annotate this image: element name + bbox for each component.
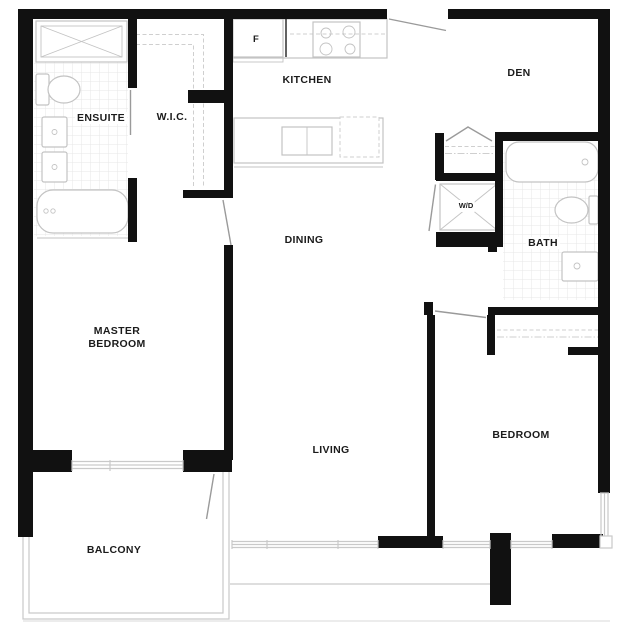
sink-bath — [562, 252, 598, 281]
wall — [435, 133, 444, 180]
room-label-living: LIVING — [310, 444, 351, 456]
wall — [128, 18, 137, 88]
wall — [436, 173, 501, 181]
floor-plan: ENSUITE W.I.C. KITCHEN DEN DINING BATH M… — [0, 0, 639, 628]
bedroom-closet-shelf — [497, 330, 598, 337]
entry-door — [389, 19, 446, 31]
room-label-kitchen: KITCHEN — [280, 74, 333, 86]
wall — [224, 245, 233, 460]
room-label-balcony: BALCONY — [85, 544, 143, 556]
toilet-ensuite — [36, 74, 80, 105]
appliance-label-washer-dryer: W/D — [458, 200, 475, 212]
den-closet-bifold-door — [446, 127, 492, 141]
wall — [18, 9, 387, 19]
floor-plan-drawing — [0, 0, 639, 628]
room-label-master-bedroom-line2: BEDROOM — [88, 338, 145, 351]
washer-dryer-door — [429, 185, 436, 232]
toilet-bath — [555, 196, 598, 224]
bedroom-hall-door — [435, 311, 486, 318]
wall — [30, 450, 72, 472]
sink-ensuite-2 — [42, 152, 67, 182]
wall — [490, 533, 511, 605]
bedroom-window — [600, 493, 612, 548]
wall — [188, 90, 224, 103]
room-label-bath: BATH — [526, 237, 560, 249]
wall — [224, 18, 233, 198]
shower — [36, 21, 127, 62]
wic-corridor-door — [223, 200, 231, 245]
room-label-den: DEN — [505, 67, 532, 79]
wall — [128, 178, 137, 242]
room-label-ensuite: ENSUITE — [75, 112, 127, 124]
sink-ensuite-1 — [42, 117, 67, 147]
room-label-master-bedroom: MASTER BEDROOM — [86, 325, 147, 351]
wall — [552, 534, 603, 548]
wall — [495, 132, 503, 247]
wall — [568, 347, 601, 355]
wall — [488, 307, 601, 315]
balcony-door — [207, 474, 215, 519]
wall — [488, 246, 497, 252]
den-closet-shelf — [445, 147, 495, 154]
room-label-master-bedroom-line1: MASTER — [88, 325, 145, 338]
bathtub-bath — [506, 142, 598, 182]
room-label-wic: W.I.C. — [155, 111, 190, 123]
appliance-label-fridge: F — [251, 34, 261, 46]
wall — [487, 315, 495, 355]
wall — [183, 190, 224, 198]
wall — [427, 315, 435, 537]
kitchen-island — [234, 117, 383, 167]
wall — [378, 536, 443, 548]
master-bedroom-window — [72, 460, 183, 471]
room-label-dining: DINING — [283, 234, 326, 246]
wall — [495, 132, 601, 141]
room-label-bedroom: BEDROOM — [490, 429, 551, 441]
wall — [448, 9, 607, 19]
wall — [598, 9, 610, 493]
wall — [436, 232, 503, 247]
bathtub-ensuite — [37, 190, 128, 238]
wall — [424, 302, 433, 315]
